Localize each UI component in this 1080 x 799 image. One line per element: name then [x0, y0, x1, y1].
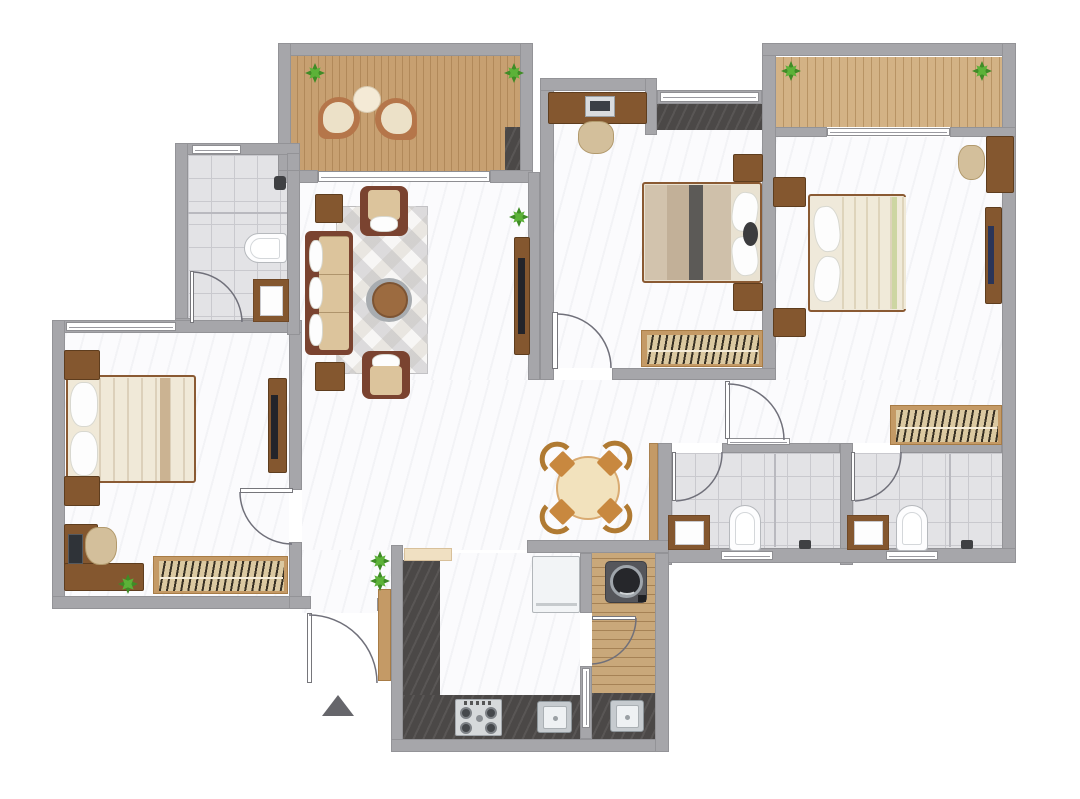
washbasin: [253, 279, 289, 322]
burner: [460, 722, 472, 734]
sofa: [305, 231, 353, 355]
basin: [854, 521, 883, 545]
door-leaf: [592, 616, 636, 620]
wall-wood-finish: [649, 443, 658, 542]
bed-pillow: [811, 255, 842, 304]
wall: [278, 43, 533, 56]
wall: [527, 540, 669, 553]
bed-decor: [743, 222, 758, 246]
computer-monitor: [68, 534, 83, 564]
gas-stove: [455, 699, 502, 736]
sofa-back-cushion: [309, 314, 323, 346]
tv-screen: [518, 258, 525, 334]
wall: [175, 143, 188, 328]
armchair: [362, 351, 410, 399]
nightstand: [773, 177, 806, 207]
toilet-seat: [735, 512, 755, 545]
sink-drain: [625, 715, 630, 720]
bathroom-1-partition: [188, 212, 287, 214]
bed: [808, 194, 906, 312]
door-threshold: [727, 438, 790, 445]
basin: [260, 286, 283, 316]
wardrobe-rail: [896, 410, 998, 442]
dining-table: [556, 456, 620, 520]
window: [318, 171, 490, 182]
toilet-seat: [902, 512, 922, 545]
washer-glass: [617, 584, 637, 595]
kitchen-counter-vertical: [403, 560, 440, 699]
chair-cushion: [381, 103, 412, 134]
side-table: [315, 362, 345, 391]
bathroom-3-shower-screen: [949, 454, 951, 547]
window: [66, 322, 176, 331]
bed-blanket: [645, 185, 731, 280]
window: [721, 551, 773, 560]
armchair-seat: [370, 216, 398, 232]
toilet-seat: [250, 238, 280, 259]
bed: [66, 375, 196, 483]
sofa-seat: [319, 236, 349, 350]
breakfast-shelf: [404, 548, 452, 561]
wall: [289, 332, 302, 490]
bed-blanket-stripe: [892, 197, 897, 309]
wall: [1002, 43, 1016, 563]
bathroom-2-shower-screen: [774, 454, 776, 547]
utility-sink: [610, 700, 644, 732]
door-leaf: [307, 613, 312, 683]
nightstand: [733, 154, 763, 182]
nightstand: [733, 283, 763, 311]
kitchen-sink: [537, 701, 572, 733]
desk: [986, 136, 1014, 193]
door-leaf: [190, 271, 194, 323]
washbasin: [847, 515, 889, 550]
sink-drain: [553, 716, 558, 721]
door-leaf: [725, 381, 730, 439]
nightstand: [773, 308, 806, 337]
window: [582, 668, 590, 728]
wall: [391, 739, 669, 752]
desk-chair: [578, 121, 614, 154]
bed-blanket: [99, 378, 194, 481]
bedroom-2-window-mat: [657, 104, 762, 130]
shower-tap-icon: [961, 540, 973, 549]
window: [660, 92, 759, 102]
desk: [64, 563, 144, 591]
window: [886, 551, 938, 560]
toilet: [729, 505, 761, 551]
wall: [391, 545, 403, 752]
balcony-table: [353, 86, 381, 113]
wall: [658, 548, 1016, 563]
balcony-2-deck: [776, 57, 1002, 127]
shoe-cabinet: [378, 589, 391, 681]
wall: [762, 43, 1016, 56]
wall: [775, 127, 827, 137]
entrance-marker-icon: [322, 695, 354, 716]
wall: [655, 553, 669, 752]
armchair: [360, 186, 408, 236]
washbasin: [668, 515, 710, 550]
wall: [52, 596, 302, 609]
washing-machine: [605, 561, 647, 603]
bed-pillow: [70, 431, 98, 476]
shower-head-icon: [274, 176, 286, 190]
tv-screen: [271, 395, 278, 459]
nightstand: [64, 350, 100, 380]
bed-pillow: [70, 382, 98, 427]
door-arc-entrance: [309, 615, 377, 683]
sofa-back-cushion: [309, 277, 323, 309]
tv-screen: [988, 226, 994, 284]
wardrobe: [153, 556, 288, 594]
door-leaf: [851, 452, 855, 501]
wall: [580, 553, 592, 613]
side-table: [315, 194, 343, 223]
wall: [612, 368, 776, 380]
wall: [490, 170, 533, 183]
monitor-screen: [590, 101, 610, 111]
chair-cushion: [323, 102, 354, 133]
wardrobe-rail: [159, 561, 284, 591]
wall: [289, 596, 311, 609]
window: [827, 128, 950, 136]
wall: [540, 78, 657, 91]
stove-knobs: [464, 701, 494, 705]
sofa-back-cushion: [309, 240, 323, 272]
wall: [520, 43, 533, 172]
wardrobe: [890, 405, 1002, 445]
washer-panel: [638, 595, 646, 602]
fridge-handle: [536, 603, 577, 606]
door-leaf: [240, 488, 293, 493]
armchair-cushion: [370, 366, 402, 395]
window: [192, 145, 241, 154]
burner-center: [476, 715, 483, 722]
floor-plan: [0, 0, 1080, 799]
bed-pillow: [811, 205, 842, 254]
coffee-table: [372, 282, 408, 318]
desk-chair: [958, 145, 985, 180]
toilet: [244, 233, 287, 263]
shower-tap-icon: [799, 540, 811, 549]
door-leaf: [552, 312, 558, 369]
nightstand: [64, 476, 100, 506]
basin: [675, 521, 704, 545]
wardrobe: [641, 330, 763, 367]
computer-monitor: [585, 96, 615, 117]
bed: [642, 182, 762, 283]
burner: [460, 707, 472, 719]
wardrobe-rail: [647, 335, 759, 364]
lounge-chair: [375, 98, 417, 140]
desk-chair: [85, 527, 117, 565]
door-leaf: [672, 452, 676, 501]
burner: [485, 722, 497, 734]
toilet: [896, 505, 928, 551]
bed-blanket-stripe: [160, 378, 170, 481]
refrigerator: [532, 556, 580, 613]
burner: [485, 707, 497, 719]
